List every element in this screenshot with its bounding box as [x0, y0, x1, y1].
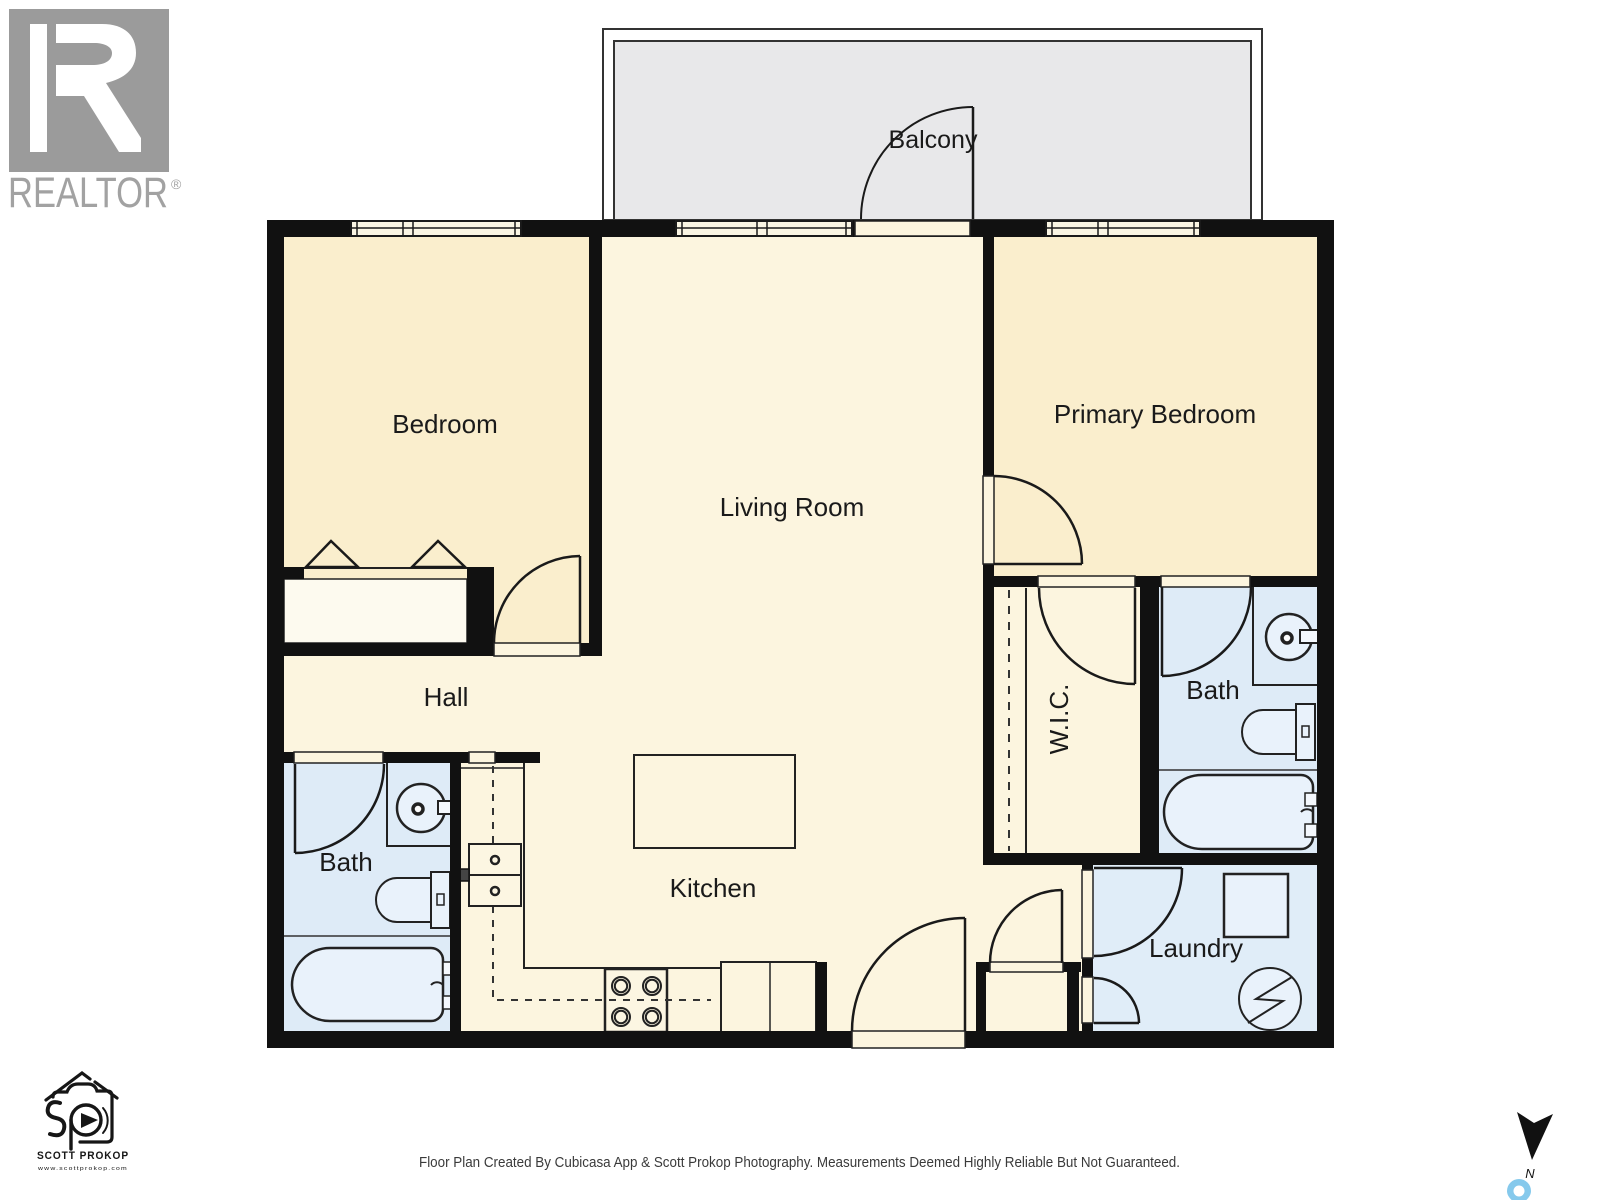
svg-text:Laundry: Laundry — [1149, 933, 1243, 963]
svg-text:Bath: Bath — [319, 847, 373, 877]
svg-text:Living Room: Living Room — [720, 492, 865, 522]
svg-text:N: N — [1525, 1166, 1535, 1181]
svg-text:®: ® — [171, 176, 182, 192]
svg-text:Primary Bedroom: Primary Bedroom — [1054, 399, 1256, 429]
svg-text:Kitchen: Kitchen — [670, 873, 757, 903]
svg-text:www.scottprokop.com: www.scottprokop.com — [37, 1166, 128, 1172]
svg-text:REALTOR: REALTOR — [8, 169, 168, 217]
svg-text:W.I.C.: W.I.C. — [1044, 684, 1074, 755]
svg-text:Balcony: Balcony — [889, 126, 978, 154]
svg-text:Bath: Bath — [1186, 675, 1240, 705]
svg-text:SCOTT PROKOP: SCOTT PROKOP — [37, 1150, 129, 1162]
svg-text:Floor Plan Created By Cubicasa: Floor Plan Created By Cubicasa App & Sco… — [419, 1154, 1180, 1171]
svg-text:Hall: Hall — [424, 682, 469, 712]
svg-text:Bedroom: Bedroom — [392, 409, 498, 439]
